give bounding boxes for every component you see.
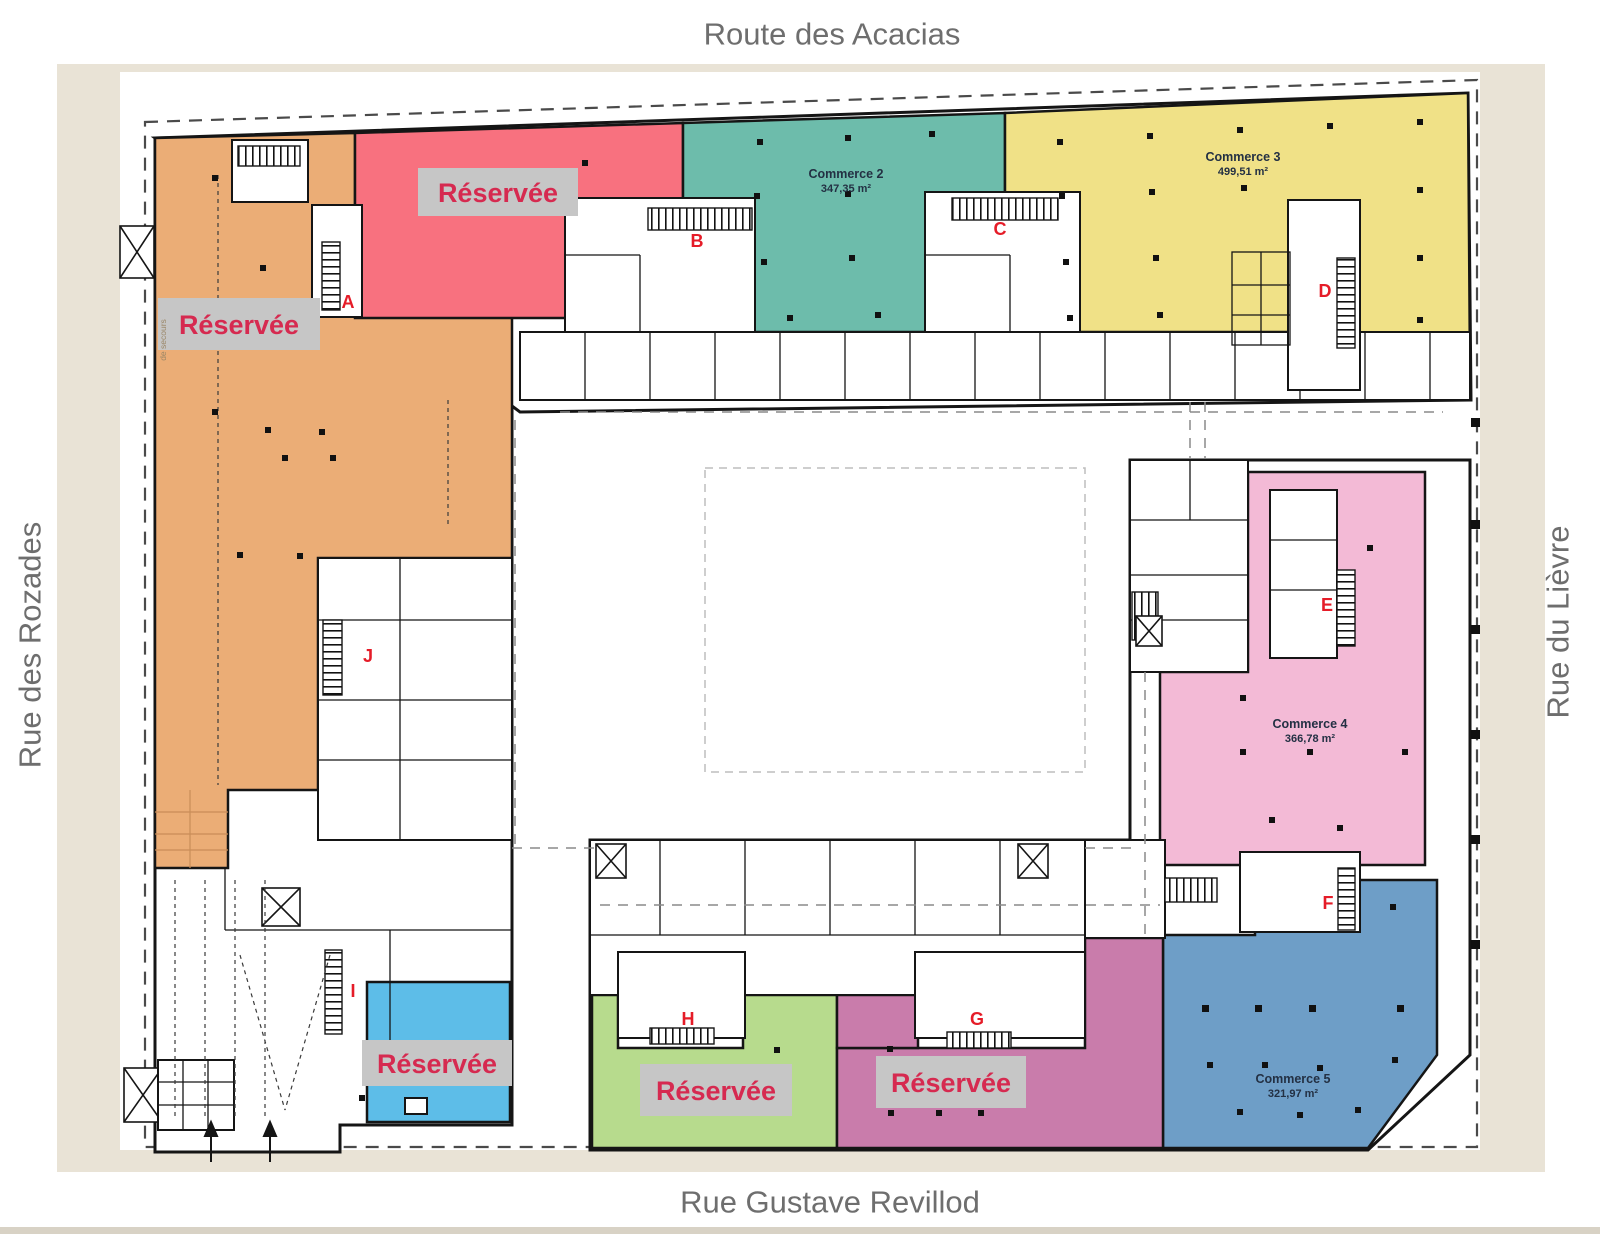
emergency-exit-note: de secours <box>158 319 168 361</box>
commerce-2-area: 347,35 m² <box>821 183 871 195</box>
stairs-icon-i <box>325 950 342 1034</box>
reserved-label-green: Réservée <box>656 1076 776 1106</box>
reserved-label-southwest: Réservée <box>377 1049 497 1079</box>
core-g <box>915 952 1085 1038</box>
elevator-icon <box>120 226 154 278</box>
zone-reserved-magenta-rooms <box>837 995 918 1048</box>
stairs-icon-f <box>1338 868 1355 930</box>
marker-h: H <box>682 1009 695 1029</box>
stairs-icon-j <box>323 620 342 695</box>
stairs-icon-h <box>650 1028 714 1044</box>
marker-a: A <box>342 292 355 312</box>
commerce-4-area: 366,78 m² <box>1285 733 1335 745</box>
commerce-4-name: Commerce 4 <box>1272 717 1347 731</box>
bottom-edge-strip <box>0 1227 1600 1234</box>
elevator-icon <box>124 1068 162 1122</box>
reserved-label-west: Réservée <box>179 310 299 340</box>
commerce-3-area: 499,51 m² <box>1218 166 1268 178</box>
marker-e: E <box>1321 595 1333 615</box>
marker-i: I <box>350 981 355 1001</box>
marker-f: F <box>1323 893 1334 913</box>
stairs-icon-f-side <box>1165 878 1217 902</box>
stairs-icon-b <box>648 208 752 230</box>
elevator-icon <box>596 844 626 878</box>
stairs-icon-c <box>952 198 1058 220</box>
floor-plan: Réservée Réservée Réservée Réservée Rése… <box>0 0 1600 1234</box>
marker-j: J <box>363 646 373 666</box>
sw-shaft-grid <box>158 1060 234 1130</box>
stairs-icon-d <box>1337 258 1355 348</box>
commerce-5-name: Commerce 5 <box>1255 1072 1330 1086</box>
stairs-icon-g <box>947 1032 1011 1048</box>
commerce-5-area: 321,97 m² <box>1268 1088 1318 1100</box>
commerce-2-name: Commerce 2 <box>808 167 883 181</box>
stairs-icon-e <box>1337 570 1355 646</box>
commerce-3-name: Commerce 3 <box>1205 150 1280 164</box>
west-inner-rooms <box>318 558 512 840</box>
reserved-label-magenta: Réservée <box>891 1068 1011 1098</box>
elevator-icon <box>1018 844 1048 878</box>
marker-b: B <box>691 231 704 251</box>
elevator-icon <box>1136 616 1162 646</box>
stairs-icon-a <box>322 242 340 310</box>
elevator-icon <box>262 888 300 926</box>
reserved-label-north: Réservée <box>438 178 558 208</box>
street-label-bottom: Rue Gustave Revillod <box>680 1185 980 1220</box>
floor-plan-page: Réservée Réservée Réservée Réservée Rése… <box>0 0 1600 1234</box>
street-label-top: Route des Acacias <box>704 17 961 52</box>
stairs-icon-topleft <box>238 146 300 166</box>
south-wing-rooms-right <box>1085 840 1165 938</box>
marker-g: G <box>970 1009 984 1029</box>
marker-d: D <box>1319 281 1332 301</box>
equipment-box <box>405 1098 427 1114</box>
street-label-right: Rue du Lièvre <box>1541 525 1576 718</box>
marker-c: C <box>994 219 1007 239</box>
street-label-left: Rue des Rozades <box>13 522 48 768</box>
dots-red <box>582 160 588 166</box>
core-e <box>1270 490 1337 658</box>
